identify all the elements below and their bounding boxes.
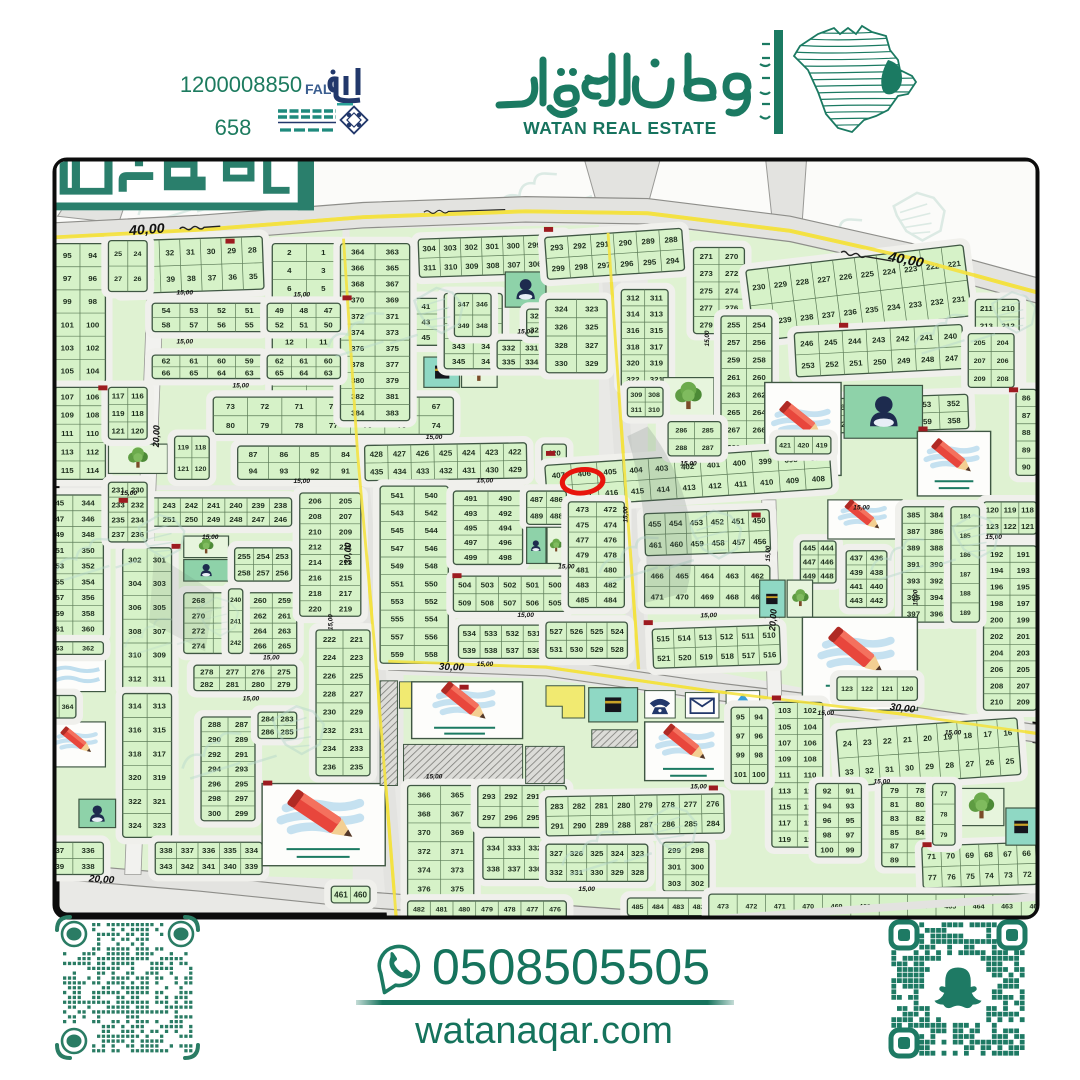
svg-text:56: 56 (217, 320, 227, 329)
svg-text:346: 346 (82, 515, 96, 524)
svg-text:311: 311 (631, 407, 643, 414)
svg-text:274: 274 (725, 286, 739, 295)
svg-text:235: 235 (865, 305, 880, 315)
svg-text:299: 299 (235, 809, 249, 818)
svg-text:270: 270 (725, 252, 738, 261)
svg-text:501: 501 (526, 581, 540, 590)
svg-text:411: 411 (734, 479, 748, 489)
svg-text:461: 461 (334, 891, 348, 900)
svg-text:113: 113 (61, 448, 74, 457)
svg-text:209: 209 (974, 376, 986, 383)
svg-text:236: 236 (323, 763, 337, 772)
svg-text:214: 214 (308, 558, 322, 567)
svg-text:24: 24 (134, 251, 142, 258)
svg-text:281: 281 (595, 801, 609, 810)
svg-text:206: 206 (997, 358, 1009, 365)
svg-text:508: 508 (481, 598, 495, 607)
svg-text:65: 65 (189, 369, 199, 378)
svg-text:234: 234 (887, 302, 902, 312)
svg-text:506: 506 (526, 598, 540, 607)
svg-text:15,00: 15,00 (477, 477, 494, 484)
svg-text:546: 546 (425, 544, 439, 553)
svg-text:228: 228 (795, 277, 810, 287)
svg-text:60: 60 (217, 357, 226, 366)
svg-text:277: 277 (226, 667, 239, 676)
svg-text:282: 282 (200, 680, 214, 689)
svg-text:337: 337 (181, 846, 194, 855)
svg-text:368: 368 (351, 280, 365, 289)
svg-text:202: 202 (990, 632, 1004, 641)
svg-text:446: 446 (820, 558, 834, 567)
svg-text:77: 77 (928, 873, 937, 882)
svg-text:320: 320 (626, 359, 639, 368)
svg-text:96: 96 (823, 816, 833, 825)
svg-text:62: 62 (275, 357, 285, 366)
svg-text:91: 91 (341, 467, 351, 476)
svg-text:408: 408 (811, 474, 826, 484)
svg-text:259: 259 (727, 356, 741, 365)
svg-text:48: 48 (299, 306, 309, 315)
svg-text:472: 472 (604, 505, 618, 514)
svg-text:541: 541 (391, 491, 405, 500)
svg-text:483: 483 (576, 581, 590, 590)
svg-text:288: 288 (208, 720, 222, 729)
svg-text:107: 107 (778, 738, 791, 747)
svg-text:114: 114 (86, 466, 99, 475)
svg-text:318: 318 (128, 749, 142, 758)
svg-text:410: 410 (760, 478, 774, 488)
svg-text:98: 98 (88, 297, 98, 306)
svg-text:477: 477 (576, 535, 589, 544)
svg-text:103: 103 (61, 344, 75, 353)
svg-text:230: 230 (323, 708, 336, 717)
svg-text:440: 440 (870, 582, 883, 591)
svg-text:260: 260 (253, 596, 266, 605)
svg-text:348: 348 (82, 530, 96, 539)
svg-text:356: 356 (82, 593, 96, 602)
svg-text:73: 73 (226, 402, 236, 411)
svg-text:515: 515 (656, 634, 670, 643)
svg-text:87: 87 (249, 450, 258, 459)
svg-text:258: 258 (237, 569, 251, 578)
svg-text:338: 338 (159, 846, 173, 855)
svg-text:108: 108 (803, 755, 817, 764)
svg-text:354: 354 (82, 578, 96, 587)
svg-text:113: 113 (778, 787, 791, 796)
svg-text:281: 281 (226, 680, 240, 689)
svg-text:21: 21 (903, 735, 913, 744)
svg-text:316: 316 (626, 326, 640, 335)
svg-text:300: 300 (691, 863, 704, 872)
svg-text:310: 310 (648, 407, 660, 414)
svg-text:476: 476 (604, 535, 618, 544)
svg-text:68: 68 (984, 850, 994, 859)
svg-text:331: 331 (525, 343, 539, 352)
svg-text:64: 64 (217, 369, 227, 378)
svg-text:63: 63 (324, 369, 334, 378)
svg-text:247: 247 (945, 354, 959, 363)
svg-text:216: 216 (308, 574, 322, 583)
svg-text:227: 227 (817, 274, 831, 284)
svg-text:538: 538 (484, 646, 498, 655)
svg-text:554: 554 (425, 615, 439, 624)
svg-text:30,00: 30,00 (342, 542, 353, 564)
svg-text:15,00: 15,00 (477, 661, 494, 668)
svg-text:299: 299 (551, 264, 566, 274)
svg-text:25: 25 (114, 251, 122, 258)
svg-text:111: 111 (778, 771, 791, 780)
svg-text:93: 93 (846, 801, 856, 810)
svg-text:278: 278 (200, 667, 214, 676)
svg-text:426: 426 (416, 449, 430, 458)
svg-text:73: 73 (1004, 871, 1014, 880)
svg-text:15,00: 15,00 (294, 478, 311, 485)
svg-text:330: 330 (590, 868, 603, 877)
svg-text:311: 311 (650, 294, 663, 303)
svg-text:290: 290 (573, 821, 586, 830)
svg-text:306: 306 (128, 603, 142, 612)
svg-text:507: 507 (503, 598, 516, 607)
svg-text:104: 104 (803, 722, 817, 731)
svg-text:118: 118 (131, 409, 144, 418)
svg-text:254: 254 (257, 552, 271, 561)
svg-text:308: 308 (128, 627, 142, 636)
svg-text:366: 366 (351, 264, 365, 273)
svg-text:263: 263 (727, 390, 741, 399)
svg-text:87: 87 (890, 842, 899, 851)
svg-text:420: 420 (797, 443, 809, 450)
svg-text:302: 302 (464, 243, 478, 252)
svg-text:342: 342 (181, 862, 195, 871)
svg-text:232: 232 (930, 297, 945, 307)
svg-text:339: 339 (245, 862, 259, 871)
svg-text:220: 220 (308, 604, 321, 613)
svg-text:204: 204 (997, 340, 1009, 347)
svg-text:275: 275 (277, 667, 291, 676)
svg-text:253: 253 (276, 552, 290, 561)
svg-text:28: 28 (248, 246, 258, 255)
svg-text:98: 98 (823, 831, 833, 840)
svg-text:15,00: 15,00 (177, 338, 194, 345)
svg-text:539: 539 (463, 646, 477, 655)
svg-text:343: 343 (452, 342, 466, 351)
svg-text:338: 338 (82, 862, 96, 871)
svg-text:388: 388 (930, 544, 944, 553)
svg-text:289: 289 (641, 237, 656, 247)
svg-text:335: 335 (223, 846, 237, 855)
svg-text:319: 319 (153, 773, 167, 782)
svg-text:497: 497 (464, 538, 477, 547)
svg-text:496: 496 (499, 538, 513, 547)
svg-text:309: 309 (153, 651, 167, 660)
svg-text:204: 204 (990, 649, 1004, 658)
svg-text:525: 525 (590, 627, 604, 636)
svg-text:328: 328 (555, 341, 569, 350)
svg-text:298: 298 (208, 794, 222, 803)
svg-text:223: 223 (350, 653, 364, 662)
svg-text:334: 334 (487, 844, 501, 853)
svg-text:340: 340 (223, 862, 236, 871)
svg-text:240: 240 (230, 597, 241, 604)
svg-text:558: 558 (425, 650, 439, 659)
svg-text:374: 374 (417, 866, 431, 875)
svg-text:15,00: 15,00 (263, 654, 280, 661)
svg-text:208: 208 (990, 681, 1004, 690)
svg-text:52: 52 (275, 320, 285, 329)
svg-text:493: 493 (464, 509, 478, 518)
svg-text:309: 309 (630, 392, 642, 399)
svg-text:456: 456 (753, 537, 767, 546)
svg-text:433: 433 (416, 467, 430, 476)
svg-text:15,00: 15,00 (327, 614, 334, 630)
svg-text:338: 338 (487, 865, 501, 874)
svg-text:17: 17 (983, 730, 992, 739)
svg-text:59: 59 (245, 357, 255, 366)
svg-text:462: 462 (751, 572, 765, 581)
svg-text:308: 308 (486, 261, 500, 270)
svg-text:280: 280 (617, 801, 630, 810)
svg-text:335: 335 (502, 358, 516, 367)
svg-text:448: 448 (820, 572, 834, 581)
svg-text:96: 96 (754, 732, 764, 741)
svg-text:221: 221 (350, 635, 364, 644)
svg-text:32: 32 (865, 766, 875, 775)
svg-text:471: 471 (774, 903, 786, 910)
svg-text:324: 324 (611, 849, 625, 858)
svg-text:392: 392 (930, 577, 944, 586)
svg-text:310: 310 (444, 262, 458, 271)
svg-text:187: 187 (960, 571, 971, 578)
svg-text:423: 423 (485, 448, 499, 457)
svg-text:249: 249 (207, 515, 221, 524)
svg-text:122: 122 (861, 686, 873, 693)
svg-text:514: 514 (677, 634, 691, 643)
svg-text:294: 294 (666, 256, 681, 266)
svg-text:119: 119 (112, 409, 125, 418)
svg-text:358: 358 (947, 416, 961, 425)
svg-text:94: 94 (88, 251, 98, 260)
svg-text:78: 78 (940, 812, 948, 819)
svg-text:53: 53 (189, 306, 199, 315)
svg-text:22: 22 (883, 736, 893, 745)
svg-text:238: 238 (274, 501, 288, 510)
svg-text:473: 473 (717, 903, 729, 910)
svg-text:105: 105 (778, 722, 792, 731)
svg-text:58: 58 (162, 320, 172, 329)
svg-text:27: 27 (114, 276, 122, 283)
svg-text:100: 100 (820, 845, 833, 854)
svg-text:547: 547 (391, 544, 404, 553)
svg-text:447: 447 (803, 558, 816, 567)
svg-text:449: 449 (803, 572, 817, 581)
svg-text:WATAN REAL ESTATE: WATAN REAL ESTATE (523, 118, 717, 138)
svg-text:316: 316 (128, 725, 142, 734)
svg-text:337: 337 (508, 865, 521, 874)
svg-text:318: 318 (626, 342, 640, 351)
svg-text:258: 258 (753, 356, 767, 365)
svg-text:260: 260 (753, 373, 766, 382)
svg-text:32: 32 (165, 248, 175, 257)
svg-text:487: 487 (530, 495, 543, 504)
svg-text:358: 358 (82, 609, 96, 618)
svg-text:282: 282 (573, 802, 587, 811)
svg-text:293: 293 (550, 243, 565, 253)
svg-text:434: 434 (393, 467, 407, 476)
svg-text:325: 325 (585, 323, 599, 332)
svg-text:387: 387 (907, 527, 920, 536)
svg-text:80: 80 (226, 421, 235, 430)
svg-text:288: 288 (675, 445, 687, 452)
svg-text:543: 543 (391, 509, 405, 518)
svg-text:468: 468 (726, 593, 740, 602)
svg-text:528: 528 (611, 645, 625, 654)
svg-text:217: 217 (339, 589, 352, 598)
svg-text:224: 224 (882, 267, 897, 277)
svg-text:62: 62 (162, 357, 172, 366)
svg-text:105: 105 (61, 367, 75, 376)
svg-text:247: 247 (252, 515, 265, 524)
svg-text:222: 222 (323, 635, 337, 644)
svg-text:259: 259 (278, 596, 292, 605)
svg-text:553: 553 (391, 597, 405, 606)
svg-text:102: 102 (803, 706, 817, 715)
svg-text:15,00: 15,00 (818, 710, 835, 717)
svg-text:444: 444 (820, 544, 834, 553)
svg-text:235: 235 (350, 763, 364, 772)
svg-text:330: 330 (555, 359, 568, 368)
svg-text:239: 239 (778, 315, 793, 325)
svg-text:40,00: 40,00 (127, 220, 165, 238)
svg-text:366: 366 (417, 791, 431, 800)
svg-text:381: 381 (386, 392, 400, 401)
svg-text:360: 360 (82, 625, 95, 634)
svg-text:277: 277 (700, 304, 713, 313)
svg-text:74: 74 (985, 871, 995, 880)
svg-text:551: 551 (391, 579, 405, 588)
svg-text:210: 210 (990, 698, 1003, 707)
svg-text:96: 96 (88, 274, 98, 283)
svg-text:248: 248 (921, 355, 935, 365)
svg-text:219: 219 (339, 604, 353, 613)
svg-text:336: 336 (202, 846, 216, 855)
svg-text:479: 479 (481, 907, 493, 914)
svg-text:293: 293 (235, 765, 249, 774)
svg-text:445: 445 (803, 544, 817, 553)
svg-text:504: 504 (458, 581, 472, 590)
svg-text:15,00: 15,00 (202, 534, 219, 541)
svg-text:430: 430 (485, 466, 498, 475)
svg-text:292: 292 (208, 750, 222, 759)
svg-text:91: 91 (846, 787, 856, 796)
svg-text:326: 326 (555, 323, 569, 332)
svg-text:110: 110 (86, 429, 99, 438)
svg-text:293: 293 (482, 792, 496, 801)
svg-text:31: 31 (885, 765, 895, 774)
svg-text:484: 484 (604, 596, 618, 605)
svg-text:15,00: 15,00 (558, 563, 575, 570)
svg-text:284: 284 (706, 819, 720, 828)
svg-text:425: 425 (439, 449, 453, 458)
svg-text:226: 226 (323, 671, 337, 680)
svg-text:250: 250 (873, 357, 887, 366)
svg-text:232: 232 (131, 501, 145, 510)
svg-text:15,00: 15,00 (294, 292, 311, 299)
svg-text:365: 365 (386, 264, 400, 273)
svg-text:111: 111 (61, 429, 74, 438)
svg-text:101: 101 (734, 770, 748, 779)
svg-text:11: 11 (319, 338, 328, 347)
svg-text:422: 422 (508, 448, 522, 457)
svg-text:36: 36 (228, 273, 238, 282)
svg-text:70: 70 (946, 851, 955, 860)
svg-text:209: 209 (339, 527, 353, 536)
svg-text:473: 473 (576, 505, 590, 514)
svg-text:199: 199 (1017, 616, 1031, 625)
svg-text:494: 494 (499, 524, 513, 533)
svg-text:90: 90 (1022, 463, 1031, 472)
svg-text:364: 364 (62, 704, 74, 711)
svg-text:317: 317 (650, 342, 663, 351)
svg-text:50: 50 (324, 320, 333, 329)
svg-text:295: 295 (527, 813, 541, 822)
svg-text:23: 23 (863, 738, 873, 747)
svg-text:302: 302 (691, 879, 705, 888)
svg-text:552: 552 (425, 597, 439, 606)
svg-text:94: 94 (823, 801, 833, 810)
svg-text:37: 37 (207, 273, 216, 282)
svg-text:209: 209 (1017, 698, 1031, 707)
svg-text:376: 376 (417, 884, 431, 893)
svg-text:329: 329 (611, 868, 625, 877)
svg-text:240: 240 (229, 501, 242, 510)
svg-text:511: 511 (741, 631, 755, 640)
svg-text:20,00: 20,00 (151, 425, 162, 448)
svg-text:524: 524 (611, 627, 625, 636)
svg-text:26: 26 (134, 276, 142, 283)
svg-text:393: 393 (907, 577, 921, 586)
svg-text:102: 102 (86, 344, 100, 353)
svg-text:228: 228 (323, 690, 337, 699)
svg-text:658: 658 (215, 115, 252, 140)
svg-text:119: 119 (178, 445, 190, 452)
svg-text:61: 61 (189, 357, 199, 366)
svg-text:291: 291 (551, 822, 565, 831)
svg-text:534: 534 (463, 629, 477, 638)
svg-text:476: 476 (549, 907, 561, 914)
svg-text:439: 439 (850, 568, 864, 577)
svg-text:72: 72 (1023, 870, 1033, 879)
svg-text:83: 83 (890, 814, 900, 823)
svg-text:481: 481 (436, 907, 448, 914)
svg-text:95: 95 (63, 251, 73, 260)
svg-text:15,00: 15,00 (704, 330, 711, 346)
svg-text:301: 301 (485, 242, 499, 251)
svg-text:323: 323 (585, 304, 599, 313)
svg-text:100: 100 (752, 770, 765, 779)
svg-text:231: 231 (350, 726, 364, 735)
svg-text:54: 54 (162, 306, 172, 315)
svg-text:15,00: 15,00 (517, 612, 534, 619)
svg-text:75: 75 (966, 872, 976, 881)
svg-text:297: 297 (235, 794, 248, 803)
svg-text:120: 120 (901, 686, 913, 693)
svg-text:15,00: 15,00 (177, 290, 194, 297)
svg-text:288: 288 (664, 235, 679, 245)
svg-text:93: 93 (279, 467, 289, 476)
svg-text:4: 4 (287, 266, 292, 275)
svg-text:505: 505 (548, 598, 562, 607)
svg-text:205: 205 (339, 497, 353, 506)
